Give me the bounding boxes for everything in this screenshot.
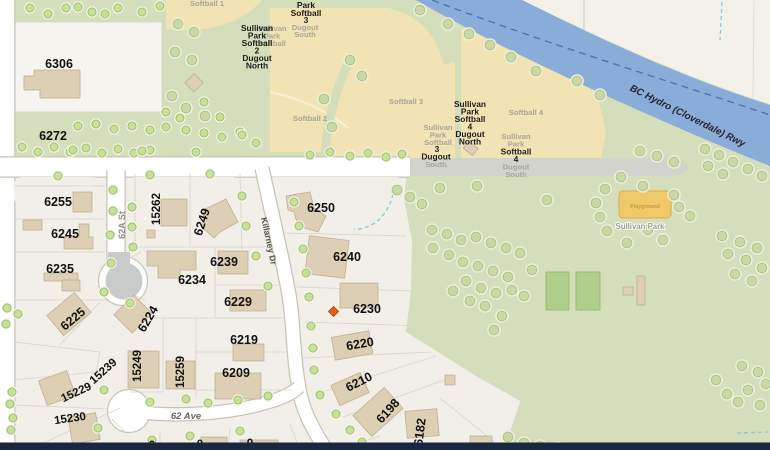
svg-text:6255: 6255 [44,195,72,209]
svg-text:Softball 1: Softball 1 [190,0,225,8]
svg-text:South: South [505,170,527,179]
svg-text:Softball 3: Softball 3 [389,97,423,106]
svg-text:62 Ave: 62 Ave [171,411,202,422]
svg-text:North: North [459,137,481,147]
svg-text:Softball 2: Softball 2 [293,114,327,123]
svg-text:6235: 6235 [46,262,74,276]
svg-text:Playground: Playground [630,204,660,210]
svg-text:6230: 6230 [353,302,381,316]
svg-text:South: South [425,160,447,169]
svg-text:6240: 6240 [333,250,361,264]
svg-text:15262: 15262 [151,193,163,225]
svg-text:6272: 6272 [39,129,67,143]
svg-text:62A St: 62A St [117,211,127,239]
svg-text:Softball 4: Softball 4 [509,108,544,117]
svg-text:15259: 15259 [175,356,187,388]
svg-text:Sullivan Park: Sullivan Park [616,222,666,231]
svg-text:6219: 6219 [230,333,258,347]
svg-text:6245: 6245 [51,227,79,241]
svg-text:6229: 6229 [224,295,252,309]
svg-text:15249: 15249 [132,350,144,382]
svg-text:6234: 6234 [178,273,206,287]
svg-text:6209: 6209 [222,366,250,380]
svg-text:North: North [246,61,268,71]
svg-text:6239: 6239 [210,255,238,269]
svg-text:South: South [294,30,316,39]
svg-text:6306: 6306 [45,57,73,71]
svg-text:6250: 6250 [307,201,335,215]
